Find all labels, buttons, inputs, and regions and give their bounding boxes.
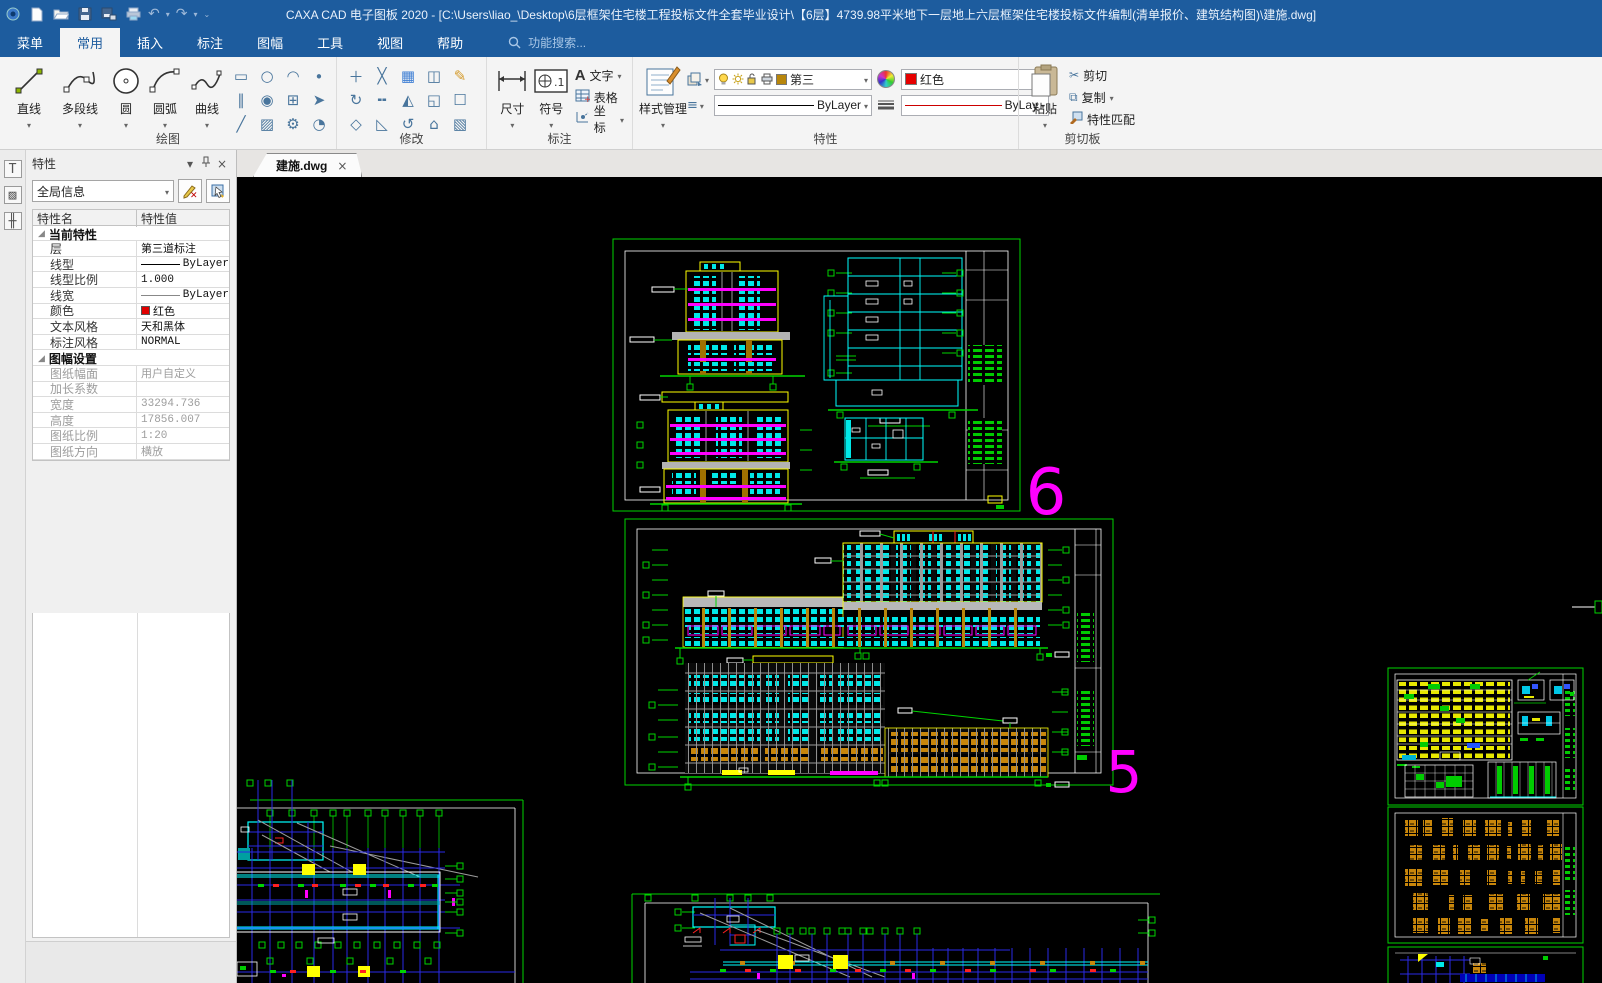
property-value[interactable]: 横放 [137,444,229,459]
paste-icon [1030,62,1060,100]
linestyle-icon[interactable]: ≡ [687,97,709,113]
property-value[interactable]: 第三道标注 [137,241,229,256]
redo-icon[interactable]: ↷ [176,7,188,21]
modify-group-label: 修改 [337,130,486,147]
draw-small-tools-icon-7[interactable]: ➤ [306,88,332,112]
arc-icon [149,62,181,100]
title-bar: ↶▾ ↷▾ ⌄ CAXA CAD 电子图板 2020 - [C:\Users\l… [0,0,1602,28]
sheet-plan-bottom-center [632,894,1160,983]
coordinate-button[interactable]: 坐标 [571,108,628,130]
ribbon-group-modify: ＋╳▦◫✎↻╍◭◱☐◇◺↺⌂▧ 修改 [336,57,486,149]
dock-strip: T ▨ ╫ [0,150,26,983]
modify-small-tools-icon-1[interactable]: ╳ [369,64,395,88]
scope-select[interactable]: 全局信息 [32,180,174,202]
property-name: 宽度 [33,397,137,412]
property-row: 线型比例1.000 [33,272,229,288]
document-tab-label: 建施.dwg [276,157,327,174]
crosshair-cursor [1572,601,1602,613]
search-placeholder: 功能搜索... [528,34,586,51]
layer-select[interactable]: 第三 [714,69,872,90]
style-manager-button[interactable]: 样式管理 [639,60,687,131]
property-name: 文本风格 [33,319,137,334]
draw-small-tools-icon-5[interactable]: ◉ [254,88,280,112]
lock-icon [747,73,758,85]
ribbon-group-clipboard: 粘贴 ✂ 剪切 ⧉ 复制 特性匹配 剪切板 [1018,57,1146,149]
draw-small-tools: ▭○◠∙∥◉⊞➤╱▨⚙◔ [228,64,332,136]
polyline-button[interactable]: 多段线 [52,60,108,131]
pick-object-button[interactable] [206,179,230,203]
property-row: 颜色红色 [33,304,229,320]
text-icon: A [575,67,586,84]
pin-icon[interactable] [198,156,214,171]
properties-table: 特性名 特性值 ◢当前特性层第三道标注线型ByLayer线型比例1.000线宽B… [32,209,230,461]
property-value[interactable]: 红色 [137,304,229,319]
arc-button[interactable]: 圆弧 [144,60,186,131]
document-area: 建施.dwg × [237,150,1602,983]
property-name: 高度 [33,413,137,428]
style-manager-icon [645,62,681,100]
modify-small-tools-icon-8[interactable]: ◱ [421,88,447,112]
properties-palette-icon[interactable]: T [4,160,22,178]
property-value[interactable]: 1.000 [137,272,229,287]
draw-group-label: 绘图 [0,130,336,147]
spline-button[interactable]: 曲线 [186,60,228,131]
layer-value: 第三 [790,71,861,88]
property-name: 颜色 [33,304,137,319]
property-row: 线宽ByLayer [33,288,229,304]
modify-small-tools-icon-3[interactable]: ◫ [421,64,447,88]
scope-selector-row: 全局信息 ✕ [26,177,236,207]
property-row: 标注风格NORMAL [33,335,229,351]
search-icon [508,36,521,49]
line-icon [14,62,44,100]
properties-panel-footer [26,941,236,983]
qat-overflow-icon[interactable]: ⌄ [204,10,211,19]
ribbon: 直线 多段线 圆 圆弧 [0,57,1602,150]
document-tab-bar: 建施.dwg × [237,150,1602,177]
match-properties-icon [1069,111,1083,127]
property-name: 层 [33,241,137,256]
properties-table-header: 特性名 特性值 [33,210,229,226]
draw-small-tools-icon-0[interactable]: ▭ [228,64,254,88]
redo-dropdown-icon[interactable]: ▾ [193,10,197,19]
property-value[interactable]: ByLayer [137,288,229,303]
properties-panel-header: 特性 ▾ × [26,150,236,177]
spline-icon [191,62,223,100]
sun-icon [732,73,744,85]
sheet-elevations-middle [625,519,1113,790]
property-name: 加长系数 [33,382,137,397]
ribbon-spacer [1146,57,1602,149]
printer-icon [761,73,773,85]
property-value[interactable]: ByLayer [137,257,229,272]
table-icon: + [575,89,590,105]
sheet-plan-right-bottom [1388,947,1583,983]
property-row: 层第三道标注 [33,241,229,257]
window-title: CAXA CAD 电子图板 2020 - [C:\Users\liao_\Des… [0,6,1602,23]
modify-small-tools-icon-0[interactable]: ＋ [343,64,369,88]
circle-icon [111,62,141,100]
property-name: 线型比例 [33,272,137,287]
match-properties-button[interactable]: 特性匹配 [1065,108,1139,130]
save-icon[interactable] [76,5,94,23]
svg-text:✕: ✕ [190,191,198,199]
layer-color-swatch [776,74,787,85]
clipboard-group-label: 剪切板 [1019,130,1146,147]
property-name: 标注风格 [33,335,137,350]
property-row: 加长系数 [33,382,229,398]
svg-text:+: + [584,95,590,102]
menu-tab-常用[interactable]: 常用 [60,28,120,57]
sheet-number-5: 5 [1106,738,1143,806]
library-palette-icon[interactable]: ▨ [4,186,22,204]
properties-controls: 第三 红色 ≡ ByLayer [687,66,1049,118]
property-value[interactable]: 1:20 [137,428,229,443]
modify-small-tools-icon-9[interactable]: ☐ [447,88,473,112]
panel-menu-icon[interactable]: ▾ [182,157,198,171]
undo-dropdown-icon[interactable]: ▾ [166,10,170,19]
property-group-row[interactable]: ◢当前特性 [33,226,229,242]
modify-small-tools-icon-6[interactable]: ╍ [369,88,395,112]
property-row: 高度17856.007 [33,413,229,429]
linetype-sample [718,105,814,106]
drawing-canvas[interactable]: .g{stroke:#00d400;fill:none}.c{stroke:#0… [237,177,1602,983]
function-search[interactable]: 功能搜索... [508,28,586,57]
coordinate-icon [575,111,590,127]
property-value[interactable]: 33294.736 [137,397,229,412]
property-value[interactable]: 用户自定义 [137,366,229,381]
sheet-elevations-top [613,239,1020,511]
annotate-group-label: 标注 [487,130,632,147]
new-file-icon[interactable] [28,5,46,23]
ribbon-group-annotate: 尺寸 .1 符号 A 文字 + 表格 [486,57,632,149]
modify-small-tools-icon-2[interactable]: ▦ [395,64,421,88]
color-wheel-icon[interactable] [877,70,895,88]
menu-tab-标注[interactable]: 标注 [180,28,240,57]
linetype-select[interactable]: ByLayer [714,95,872,116]
cut-icon: ✂ [1069,68,1079,82]
copy-button[interactable]: ⧉ 复制 [1065,86,1139,108]
property-row: 文本风格天和黑体 [33,319,229,335]
app-window: ↶▾ ↷▾ ⌄ CAXA CAD 电子图板 2020 - [C:\Users\l… [0,0,1602,983]
draw-small-tools-icon-3[interactable]: ∙ [306,64,332,88]
ribbon-group-properties: 样式管理 第三 [632,57,1018,149]
symbol-button[interactable]: .1 符号 [532,60,571,131]
symbol-icon: .1 [534,62,568,100]
modify-small-tools-icon-5[interactable]: ↻ [343,88,369,112]
properties-table-empty [32,613,230,938]
property-value[interactable]: 天和黑体 [137,319,229,334]
menu-tab-工具[interactable]: 工具 [300,28,360,57]
modify-small-tools: ＋╳▦◫✎↻╍◭◱☐◇◺↺⌂▧ [343,64,473,136]
properties-group-label: 特性 [633,130,1018,147]
open-file-icon[interactable] [52,5,70,23]
paste-button[interactable]: 粘贴 [1025,60,1065,131]
draw-small-tools-icon-1[interactable]: ○ [254,64,280,88]
cut-button[interactable]: ✂ 剪切 [1065,64,1139,86]
layer-on-icon [718,73,729,85]
property-name: 线型 [33,257,137,272]
modify-small-tools-icon-7[interactable]: ◭ [395,88,421,112]
annotate-stack: A 文字 + 表格 坐标 [571,64,628,130]
sheet-schedule-right-top [1388,668,1583,805]
document-tab[interactable]: 建施.dwg × [253,153,362,177]
menu-tab-帮助[interactable]: 帮助 [420,28,480,57]
current-color-swatch [905,73,917,85]
col-property-name: 特性名 [33,210,137,227]
sheet-windows-right-middle [1388,807,1583,943]
text-button[interactable]: A 文字 [571,64,628,86]
property-value[interactable] [137,382,229,397]
clipboard-stack: ✂ 剪切 ⧉ 复制 特性匹配 [1065,64,1139,130]
save-all-icon[interactable] [100,5,118,23]
scope-value: 全局信息 [37,183,165,200]
print-icon[interactable] [124,5,142,23]
ribbon-group-draw: 直线 多段线 圆 圆弧 [0,57,336,149]
close-panel-icon[interactable]: × [214,157,230,171]
layers-palette-icon[interactable]: ╫ [4,212,22,230]
col-property-value: 特性值 [137,210,229,227]
property-value[interactable]: 17856.007 [137,413,229,428]
polyline-icon [63,62,97,100]
sheet-number-6: 6 [1026,456,1067,530]
property-name: 图纸幅面 [33,366,137,381]
property-row: 图纸幅面用户自定义 [33,366,229,382]
menu-tab-视图[interactable]: 视图 [360,28,420,57]
lineweight-icon[interactable] [877,99,895,111]
lineweight-sample [905,105,1002,106]
tab-close-icon[interactable]: × [337,159,347,173]
property-value[interactable]: NORMAL [137,335,229,350]
draw-small-tools-icon-6[interactable]: ⊞ [280,88,306,112]
dimension-button[interactable]: 尺寸 [493,60,532,131]
dimension-icon [496,62,528,100]
app-logo-icon[interactable] [4,5,22,23]
draw-small-tools-icon-2[interactable]: ◠ [280,64,306,88]
layer-tools-icon[interactable] [687,71,709,87]
undo-icon[interactable]: ↶ [148,7,160,21]
line-button[interactable]: 直线 [6,60,52,131]
property-name: 线宽 [33,288,137,303]
menu-tab-插入[interactable]: 插入 [120,28,180,57]
property-group-row[interactable]: ◢图幅设置 [33,350,229,366]
property-row: 图纸方向横放 [33,444,229,460]
property-name: 图纸比例 [33,428,137,443]
draw-small-tools-icon-4[interactable]: ∥ [228,88,254,112]
linetype-value: ByLayer [817,98,861,112]
property-name: 图纸方向 [33,444,137,459]
sheet-plan-bottom-left [237,780,523,983]
circle-button[interactable]: 圆 [108,60,144,131]
menu-tab-图幅[interactable]: 图幅 [240,28,300,57]
properties-panel: 特性 ▾ × 全局信息 ✕ 特性名 特性值 ◢当前特性层 [26,150,237,983]
properties-panel-title: 特性 [32,155,56,172]
menu-bar: 菜单常用插入标注图幅工具视图帮助 功能搜索... [0,28,1602,57]
property-row: 线型ByLayer [33,257,229,273]
svg-text:.1: .1 [554,76,565,89]
cad-drawing: .g{stroke:#00d400;fill:none}.c{stroke:#0… [237,177,1602,983]
menu-tab-菜单[interactable]: 菜单 [0,28,60,57]
edit-cancel-button[interactable]: ✕ [178,179,202,203]
property-row: 宽度33294.736 [33,397,229,413]
modify-small-tools-icon-4[interactable]: ✎ [447,64,473,88]
quick-access-toolbar: ↶▾ ↷▾ ⌄ [0,5,210,23]
property-row: 图纸比例1:20 [33,428,229,444]
copy-icon: ⧉ [1069,90,1078,105]
